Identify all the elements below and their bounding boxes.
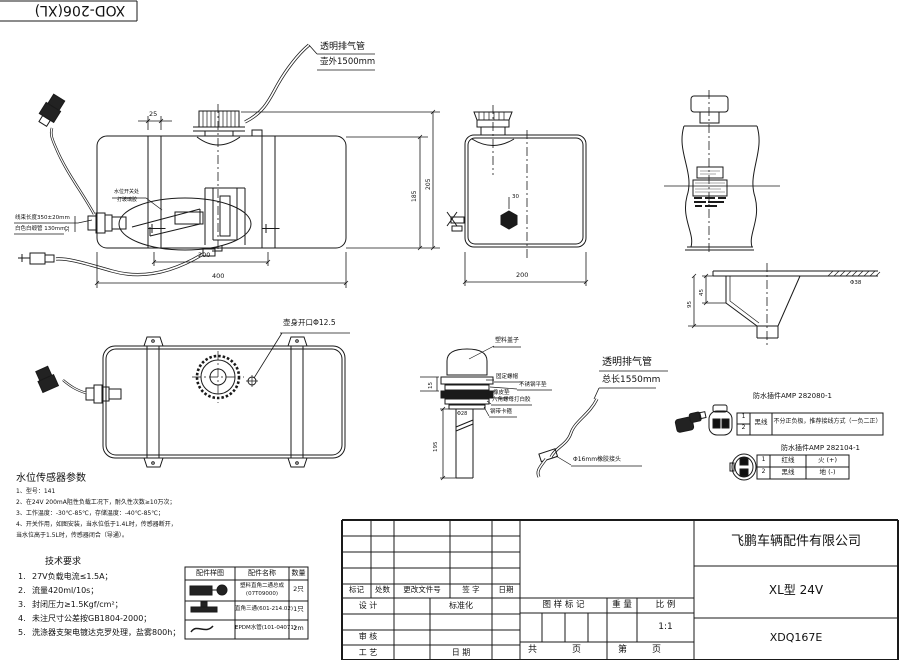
parts-row1-name1: 塑料直角二通总成 xyxy=(235,583,289,589)
dim-side-width: 200 xyxy=(516,272,528,279)
detail-label-clamp: 钢带卡箍 xyxy=(490,409,512,415)
dim-funnel-h2: 95 xyxy=(687,301,693,308)
detail-label-rubber: 橡皮垫 xyxy=(493,390,510,396)
parts-row3-qty: 2m xyxy=(289,625,308,632)
connector2-row1-wire: 红线 xyxy=(770,457,806,464)
engineering-drawing-sheet: { "sheet": { "corner_code": "XOD-206(XL)… xyxy=(0,0,900,660)
corner-code: XOD-206(XL) xyxy=(28,2,132,18)
detail-label-cap: 塑料盖子 xyxy=(495,338,519,345)
connector1-pin1: 1 xyxy=(737,414,750,421)
tech-req-text: 流量420ml/10s； xyxy=(32,586,98,595)
tech-req-no: 5. xyxy=(18,628,26,637)
connector2-row1-pol: 火 (+) xyxy=(806,457,849,464)
dim-strap-width: 25 xyxy=(149,111,157,118)
dim-height-total: 205 xyxy=(426,179,433,190)
funnel-detail xyxy=(688,263,880,346)
detail-label-nut: 固定螺帽 xyxy=(496,374,518,380)
sensor-params-line: 2、在24V 200mA阻性负载工况下，耐久性次数≥10万次； xyxy=(16,500,176,507)
parts-icons xyxy=(190,585,227,632)
connector1-note: 不分正负极，推荐接线方式（一负二正） xyxy=(772,419,883,426)
tech-req-text: 未注尺寸公差按GB1804-2000； xyxy=(32,614,151,623)
parts-row1-qty: 2只 xyxy=(289,586,308,593)
cell-sheets: 页 xyxy=(572,645,581,655)
cell-audit: 审 核 xyxy=(342,632,394,641)
vent-mid-label-2: 总长1550mm xyxy=(602,375,660,385)
tech-req-title: 技术要求 xyxy=(45,557,81,567)
cell-design: 设 计 xyxy=(342,601,394,610)
parts-row2-qty: 1只 xyxy=(289,606,308,613)
connector1-pin2: 2 xyxy=(737,425,750,432)
rev-header-date: 日期 xyxy=(492,586,520,595)
sensor-params-line: 1、型号：141 xyxy=(16,489,55,496)
parts-header-name: 配件名称 xyxy=(235,569,289,577)
lower-front-view xyxy=(34,333,350,467)
sensor-params-line: 3、工作温度：-30℃-85℃，存储温度：-40℃-85℃； xyxy=(16,511,164,518)
front-view xyxy=(14,45,440,288)
glue-note-2: 打玻璃胶 xyxy=(117,198,137,204)
tech-req-no: 3. xyxy=(18,600,26,609)
dim-plug-offset: 30 xyxy=(512,194,519,200)
connector2-row1-pin: 1 xyxy=(757,457,770,464)
tech-req-no: 4. xyxy=(18,614,26,623)
connector1-title: 防水插件AMP 282080-1 xyxy=(753,392,832,400)
detail-label-hexnut: 六角螺母打白胶 xyxy=(492,397,531,403)
dim-sensor-thread: 32 xyxy=(66,226,72,232)
parts-row2-name1: 直角三通(601-214.02) xyxy=(235,606,289,612)
harness-note-2: 白色白缎管 130mm xyxy=(15,226,65,232)
cell-no: 第 xyxy=(618,645,627,655)
harness-note-1: 线束长度350±20mm xyxy=(15,215,70,221)
parts-row3-name1: EPDM水管(101-04071) xyxy=(235,625,289,631)
connector2-row2-pol: 地 (-) xyxy=(806,469,849,476)
cell-process: 工 艺 xyxy=(342,648,394,657)
parts-header-sample: 配件样图 xyxy=(185,569,235,577)
drawing-layer xyxy=(0,0,900,660)
tech-req-no: 2. xyxy=(18,586,26,595)
rev-header-mark: 标记 xyxy=(342,586,371,595)
sensor-params-title: 水位传感器参数 xyxy=(16,473,86,485)
dim-strap-spacing: 200 xyxy=(198,252,210,259)
rev-header-sign: 签 字 xyxy=(450,586,492,595)
sensor-params-line: 4、开关作用，如图安装，当水位低于1.4L时，传感器断开， xyxy=(16,522,177,529)
parts-row1-name2: (07T09000) xyxy=(235,591,289,597)
cell-weight: 重 量 xyxy=(607,601,637,611)
dim-funnel-h1: 45 xyxy=(699,289,705,296)
sensor-params-line: 当水位高于1.5L时，传感器闭合（导通）。 xyxy=(16,533,128,540)
cell-scale: 比 例 xyxy=(637,601,694,611)
vent-mid-label-1: 透明排气管 xyxy=(602,357,652,369)
connector1-wire: 黑线 xyxy=(750,419,772,426)
vent-top-label-1: 透明排气管 xyxy=(320,42,365,52)
product-model: XL型 24V xyxy=(694,584,898,598)
rev-header-count: 处数 xyxy=(371,586,394,595)
rev-header-docno: 更改文件号 xyxy=(394,586,450,595)
partial-view xyxy=(664,90,780,254)
dim-tube-dia: Φ28 xyxy=(457,412,467,418)
dim-tube-length: 195 xyxy=(433,442,439,453)
vent-top-label-2: 壶外1500mm xyxy=(320,58,375,68)
tech-req-no: 1. xyxy=(18,572,26,581)
drawing-code: XDQ167E xyxy=(694,632,898,645)
cell-date: 日 期 xyxy=(430,648,492,657)
cell-page: 页 xyxy=(652,645,661,655)
connector2-title: 防水插件AMP 282104-1 xyxy=(781,444,860,452)
tech-req-text: 封闭压力≥1.5Kgf/cm²； xyxy=(32,600,123,609)
cell-total: 共 xyxy=(528,645,537,655)
dim-tank-length: 400 xyxy=(212,273,224,280)
glue-note-1: 水位开关处 xyxy=(114,190,139,196)
rubber-joint-label: Φ16mm橡胶接头 xyxy=(573,457,621,464)
cell-drawing-mark: 图 样 标 记 xyxy=(520,601,607,611)
parts-header-qty: 数量 xyxy=(289,569,308,577)
connector2-row2-pin: 2 xyxy=(757,469,770,476)
opening-label: 壶身开口Φ12.5 xyxy=(283,319,336,328)
dim-height-body: 185 xyxy=(412,191,419,202)
scale-value: 1:1 xyxy=(637,622,694,632)
cell-standardization: 标准化 xyxy=(430,601,492,610)
dim-washer-height: 15 xyxy=(428,382,434,389)
tech-req-text: 27V负载电流≤1.5A； xyxy=(32,572,113,581)
detail-label-washer: 不锈钢平垫 xyxy=(519,382,547,388)
tech-req-text: 洗涤器支架电镀达克罗处理，盐雾800h； xyxy=(32,628,180,637)
dim-funnel-dia: Φ38 xyxy=(850,280,861,286)
company-name: 飞鹏车辆配件有限公司 xyxy=(694,535,898,550)
connector2-row2-wire: 黑线 xyxy=(770,469,806,476)
